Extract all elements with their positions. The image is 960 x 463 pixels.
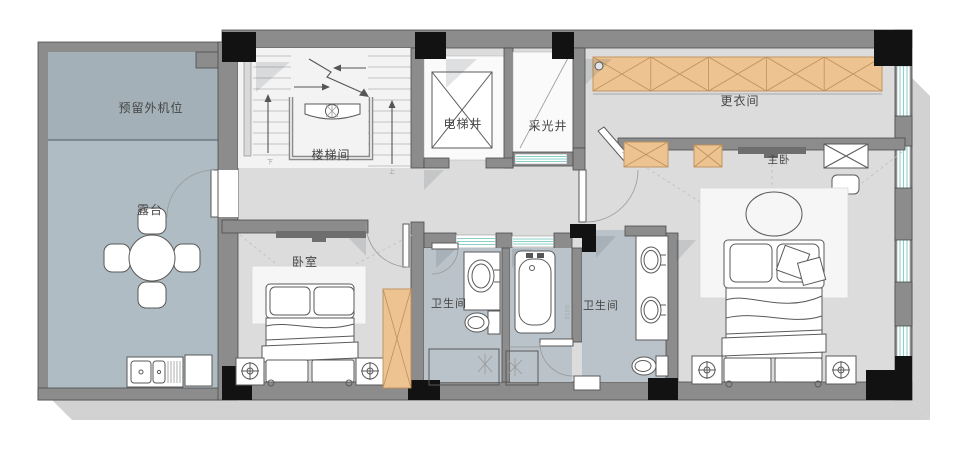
room-label-stairwell: 楼梯间 [311, 147, 350, 162]
chair [174, 244, 200, 272]
room-label-elevator: 电梯井 [443, 117, 482, 131]
nightstand-lamp [692, 356, 722, 384]
toilet [632, 356, 668, 376]
terrace-south-wall [38, 388, 222, 400]
south-wall [222, 382, 912, 400]
outdoor-sink-counter [127, 355, 212, 387]
dimension-note: 5100 [565, 305, 571, 320]
room-label-bath1: 卫生间 [431, 296, 467, 310]
nightstand-lamp [356, 358, 384, 385]
toilet [465, 311, 500, 334]
nightstand-lamp [826, 356, 856, 384]
room-label-dressing: 更衣间 [720, 93, 759, 108]
terrace-block [38, 42, 230, 400]
room-label-reserved-ac: 预留外机位 [118, 100, 183, 115]
bath-mat [574, 376, 600, 390]
floor-plan-page: 下 上 [0, 0, 960, 463]
room-label-bath2: 卫生间 [583, 298, 619, 312]
room-label-lightwell: 采光井 [528, 119, 567, 133]
nightstand-lamp [236, 358, 264, 385]
window-pillar [895, 188, 912, 240]
room-label-terrace: 露台 [137, 202, 163, 217]
room-label-bedroom: 卧室 [292, 254, 318, 269]
wardrobe-run [593, 57, 882, 94]
bedroom-east-wall [411, 222, 424, 382]
stair-down-note: 下 [267, 159, 273, 166]
tv-unit [276, 231, 366, 238]
room-label-master: 主卧 [768, 153, 791, 166]
appliance-box [185, 355, 212, 386]
tv-unit [738, 147, 806, 154]
stair-side-wall [244, 58, 251, 156]
round-table [129, 235, 175, 281]
pillow [730, 244, 772, 282]
floor-plan: 下 上 [0, 0, 960, 463]
chair [138, 282, 166, 308]
pillow [270, 287, 310, 315]
east-window-band [895, 66, 912, 358]
bathtub [515, 251, 555, 333]
bedroom-wardrobe [383, 289, 411, 388]
terrace-door-opening [218, 170, 238, 217]
pillow [314, 287, 354, 315]
ac-unit-floor [48, 52, 218, 140]
stair-up-note: 上 [389, 168, 395, 176]
window-pillar [895, 282, 912, 326]
chair [104, 244, 130, 272]
